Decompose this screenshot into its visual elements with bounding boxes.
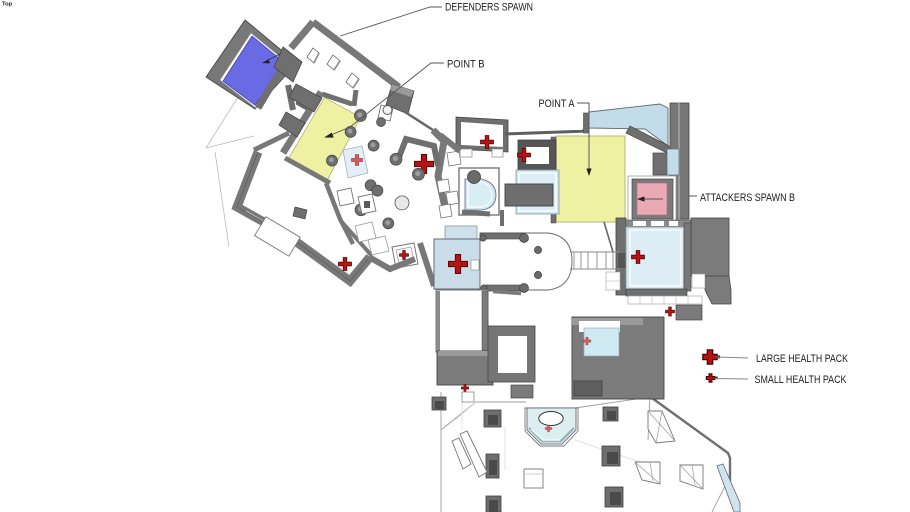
svg-text:DEFENDERS SPAWN: DEFENDERS SPAWN (445, 2, 533, 14)
svg-text:POINT B: POINT B (447, 59, 485, 71)
svg-text:ATTACKERS SPAWN B: ATTACKERS SPAWN B (700, 192, 795, 204)
svg-text:SMALL HEALTH PACK: SMALL HEALTH PACK (755, 374, 847, 386)
svg-text:Top: Top (2, 2, 13, 8)
svg-text:POINT A: POINT A (539, 98, 575, 110)
svg-text:LARGE HEALTH PACK: LARGE HEALTH PACK (756, 353, 848, 365)
